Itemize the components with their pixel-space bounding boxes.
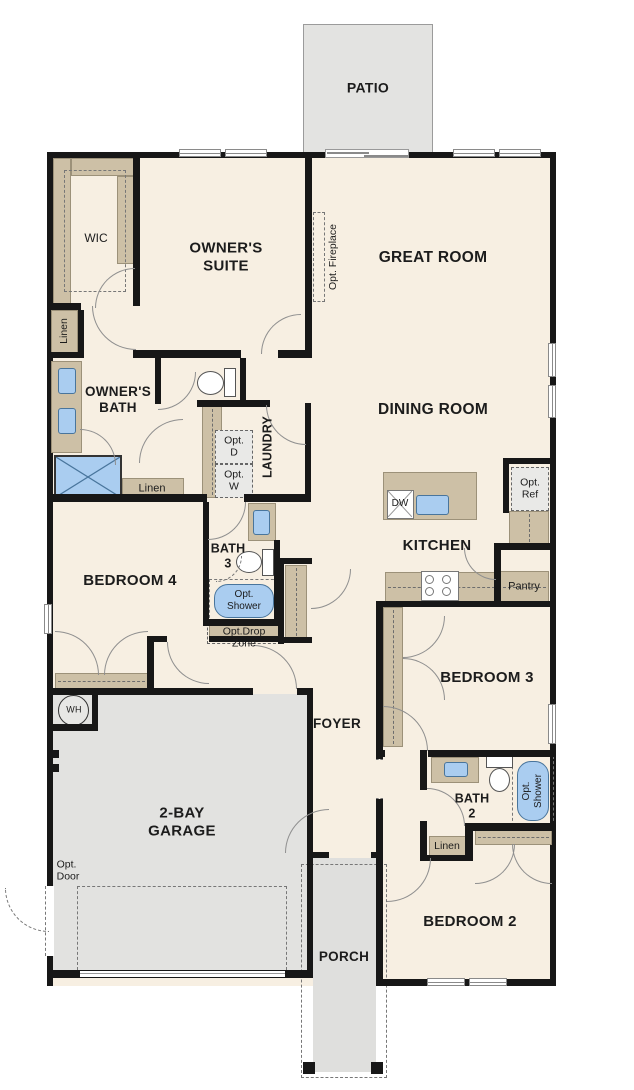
wall xyxy=(147,636,154,694)
wall xyxy=(503,458,556,464)
opt-washer-label: Opt. W xyxy=(224,469,244,494)
owners-bath-sink xyxy=(58,368,76,394)
bedroom2-label: BEDROOM 2 xyxy=(423,913,517,931)
bath3-label: BATH 3 xyxy=(211,541,246,571)
bath2-sink xyxy=(444,762,468,777)
stove xyxy=(421,571,459,601)
toilet-tank xyxy=(486,756,513,768)
wall xyxy=(494,543,556,550)
wall xyxy=(278,637,312,643)
wall xyxy=(47,303,81,310)
wall xyxy=(420,750,427,790)
window xyxy=(548,385,556,418)
wall xyxy=(244,494,311,502)
patio-label: PATIO xyxy=(347,80,389,97)
wall xyxy=(305,152,312,358)
window xyxy=(427,978,465,986)
foyer-label: FOYER xyxy=(313,716,361,732)
porch-post xyxy=(371,1062,383,1074)
wall xyxy=(240,358,246,404)
window xyxy=(499,149,541,157)
wall xyxy=(47,352,84,358)
wall xyxy=(467,823,556,831)
opt-fireplace-label: Opt. Fireplace xyxy=(327,212,339,302)
linen-label: Linen xyxy=(139,483,166,496)
foyer-closet xyxy=(285,565,307,639)
bath2-label: BATH 2 xyxy=(455,791,490,821)
wall xyxy=(376,799,383,986)
window xyxy=(469,978,507,986)
sliding-patio-door xyxy=(325,149,409,158)
wall xyxy=(53,750,59,758)
wall xyxy=(503,458,509,513)
kitchen-sink xyxy=(416,495,449,515)
wall xyxy=(428,750,556,757)
bath3-sink xyxy=(253,510,270,535)
opt-dryer-label: Opt. D xyxy=(224,435,244,460)
window xyxy=(225,149,267,157)
opt-door-label: Opt. Door xyxy=(57,859,80,884)
bedroom4-closet xyxy=(55,673,148,689)
porch-outline xyxy=(301,864,387,1078)
bedroom4-label: BEDROOM 4 xyxy=(83,572,177,590)
toilet-tank xyxy=(224,368,236,397)
owners-bath-label: OWNER'S BATH xyxy=(85,384,151,416)
drop-zone-label: Opt.Drop Zone xyxy=(223,626,266,651)
wall xyxy=(376,750,385,757)
toilet-tank xyxy=(262,549,274,576)
laundry-label: LAUNDRY xyxy=(261,402,276,492)
water-heater-label: WH xyxy=(66,705,82,716)
wall xyxy=(53,764,59,772)
wall xyxy=(133,350,241,358)
owners-suite-label: OWNER'S SUITE xyxy=(189,239,262,274)
window xyxy=(548,704,556,744)
toilet-bowl xyxy=(489,768,510,792)
owners-bath-sink xyxy=(58,408,76,434)
kitchen-label: KITCHEN xyxy=(403,537,472,555)
toilet-bowl xyxy=(197,371,224,395)
window xyxy=(44,604,52,634)
opt-fireplace-box xyxy=(313,212,325,302)
wic-label: WIC xyxy=(84,231,107,245)
garage-door-dashed xyxy=(77,886,287,970)
window xyxy=(179,149,221,157)
wall xyxy=(376,601,556,607)
bedroom3-label: BEDROOM 3 xyxy=(440,669,534,687)
window xyxy=(453,149,495,157)
bath2-opt-shower-label: Opt. Shower xyxy=(521,774,545,808)
porch-label: PORCH xyxy=(319,949,369,965)
wall xyxy=(376,601,383,759)
bath3-opt-shower-label: Opt. Shower xyxy=(227,589,261,613)
wall xyxy=(47,688,253,695)
bedroom2-closet xyxy=(475,829,552,845)
fridge-counter xyxy=(509,511,549,545)
dining-room-label: DINING ROOM xyxy=(378,401,488,419)
bath2-linen-label: Linen xyxy=(434,840,460,852)
cased-opening-dashed xyxy=(376,759,383,799)
wall xyxy=(278,558,284,644)
opt-fridge-label: Opt. Ref xyxy=(520,477,540,502)
wall xyxy=(376,979,556,986)
wall xyxy=(78,310,84,356)
porch-post xyxy=(303,1062,315,1074)
window xyxy=(548,343,556,377)
wall xyxy=(47,494,207,502)
wall xyxy=(197,400,270,407)
floor-plan: PATIO OWNER'S SUITE WIC GREAT ROOM Opt. … xyxy=(0,0,634,1090)
opt-door-arc xyxy=(5,888,49,932)
pantry-label: Pantry xyxy=(508,581,540,594)
dishwasher-label: DW xyxy=(392,498,409,510)
garage-door-opening xyxy=(80,971,285,977)
garage-label: 2-BAY GARAGE xyxy=(148,804,216,839)
great-room-label: GREAT ROOM xyxy=(379,249,488,267)
wall xyxy=(47,724,98,731)
linen-side-label: Linen xyxy=(58,318,70,344)
